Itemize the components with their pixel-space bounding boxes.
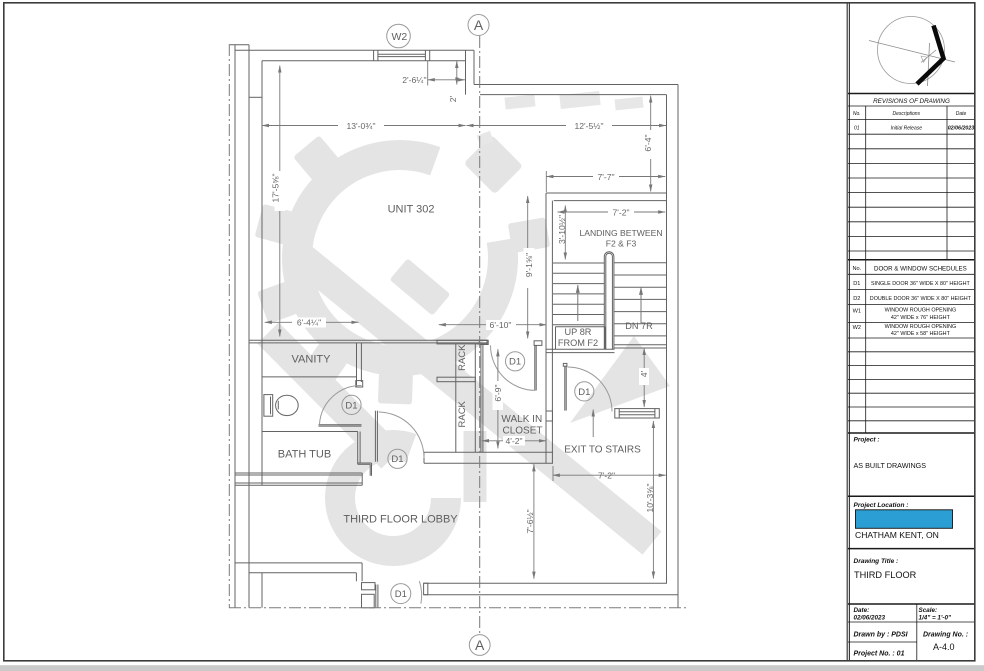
svg-text:4': 4' — [639, 370, 649, 377]
svg-text:REVISIONS OF DRAWING: REVISIONS OF DRAWING — [873, 98, 950, 105]
svg-text:CLOSET: CLOSET — [502, 425, 542, 436]
svg-text:AS BUILT DRAWINGS: AS BUILT DRAWINGS — [854, 461, 927, 470]
svg-text:02/06/2023: 02/06/2023 — [854, 615, 886, 622]
svg-text:Drawing Title :: Drawing Title : — [854, 558, 899, 565]
svg-text:6'-9": 6'-9" — [493, 384, 503, 401]
svg-text:W1: W1 — [853, 309, 861, 315]
svg-text:12'-5½": 12'-5½" — [574, 121, 603, 131]
svg-text:No.: No. — [853, 111, 861, 117]
svg-text:W2: W2 — [392, 31, 408, 43]
svg-text:THIRD FLOOR: THIRD FLOOR — [854, 570, 917, 580]
svg-text:F2 & F3: F2 & F3 — [606, 238, 637, 248]
svg-text:D1: D1 — [391, 454, 403, 465]
svg-text:Scale:: Scale: — [919, 607, 938, 614]
svg-text:6'-10": 6'-10" — [490, 320, 512, 330]
svg-text:42" WIDE x 76" HEIGHT: 42" WIDE x 76" HEIGHT — [891, 315, 951, 321]
svg-text:LANDING BETWEEN: LANDING BETWEEN — [579, 228, 662, 238]
svg-text:Project No. : 01: Project No. : 01 — [854, 651, 905, 658]
svg-text:1/4" = 1'-0": 1/4" = 1'-0" — [919, 615, 953, 622]
svg-text:13'-0¾": 13'-0¾" — [346, 121, 375, 131]
svg-text:2': 2' — [448, 95, 458, 102]
svg-text:42" WIDE x 58" HEIGHT: 42" WIDE x 58" HEIGHT — [891, 331, 951, 337]
svg-text:W2: W2 — [853, 325, 861, 331]
svg-text:A-4.0: A-4.0 — [933, 642, 955, 652]
svg-text:Project Location :: Project Location : — [854, 502, 909, 509]
svg-text:Initial Release: Initial Release — [891, 126, 923, 132]
svg-text:CHATHAM KENT, ON: CHATHAM KENT, ON — [855, 530, 939, 540]
svg-text:RACK: RACK — [457, 400, 468, 427]
svg-text:D2: D2 — [853, 296, 860, 302]
svg-text:6'-4¼": 6'-4¼" — [297, 318, 321, 328]
svg-text:Project :: Project : — [854, 437, 880, 444]
svg-text:A: A — [474, 17, 484, 33]
svg-text:Drawing No. :: Drawing No. : — [923, 632, 968, 639]
svg-text:4'-2": 4'-2" — [505, 436, 522, 446]
svg-text:WINDOW ROUGH OPENING: WINDOW ROUGH OPENING — [885, 324, 957, 330]
svg-text:DN 7R: DN 7R — [625, 321, 653, 331]
svg-text:D1: D1 — [395, 589, 407, 600]
svg-text:DOOR & WINDOW SCHEDULES: DOOR & WINDOW SCHEDULES — [874, 266, 967, 273]
svg-text:02/06/2023: 02/06/2023 — [948, 126, 975, 132]
svg-text:6'-4": 6'-4" — [643, 134, 653, 151]
svg-text:D1: D1 — [345, 400, 357, 411]
svg-text:D1: D1 — [509, 357, 521, 368]
svg-text:EXIT TO STAIRS: EXIT TO STAIRS — [564, 445, 641, 456]
svg-text:RACK: RACK — [457, 344, 468, 371]
svg-text:Date: Date — [956, 111, 967, 117]
svg-text:UNIT 302: UNIT 302 — [388, 204, 435, 216]
svg-text:D1: D1 — [578, 387, 590, 398]
svg-text:17'-5⅝": 17'-5⅝" — [271, 173, 281, 202]
svg-text:D1: D1 — [853, 281, 860, 287]
svg-text:Date:: Date: — [854, 607, 870, 614]
svg-text:WALK IN: WALK IN — [501, 414, 542, 425]
svg-text:10'-3⅝": 10'-3⅝" — [645, 483, 655, 512]
svg-text:9'-1⅝": 9'-1⅝" — [524, 253, 534, 277]
svg-text:BATH TUB: BATH TUB — [278, 449, 331, 461]
svg-text:Descriptions: Descriptions — [893, 111, 921, 117]
svg-text:A: A — [475, 637, 485, 653]
svg-text:SINGLE DOOR 36" WIDE X 80" HEI: SINGLE DOOR 36" WIDE X 80" HEIGHT — [871, 281, 970, 287]
svg-text:2'-6¼": 2'-6¼" — [402, 75, 426, 85]
svg-text:WINDOW ROUGH OPENING: WINDOW ROUGH OPENING — [885, 308, 957, 314]
svg-text:UP 8R: UP 8R — [565, 327, 592, 337]
svg-text:Drawn by : PDSI: Drawn by : PDSI — [854, 632, 909, 639]
svg-text:FROM F2: FROM F2 — [558, 338, 598, 348]
svg-text:No.: No. — [852, 266, 861, 272]
svg-text:7'-7": 7'-7" — [597, 172, 614, 182]
svg-text:3'-10½": 3'-10½" — [557, 215, 567, 244]
svg-text:VANITY: VANITY — [292, 354, 332, 366]
svg-text:DOUBLE DOOR 36" WIDE X 80" HEI: DOUBLE DOOR 36" WIDE X 80" HEIGHT — [870, 296, 972, 302]
svg-text:THIRD FLOOR LOBBY: THIRD FLOOR LOBBY — [343, 514, 458, 526]
svg-text:7'-6½": 7'-6½" — [525, 509, 535, 533]
svg-text:7'-2": 7'-2" — [612, 208, 629, 218]
svg-text:7'-2": 7'-2" — [598, 470, 615, 480]
svg-text:01: 01 — [854, 126, 860, 132]
